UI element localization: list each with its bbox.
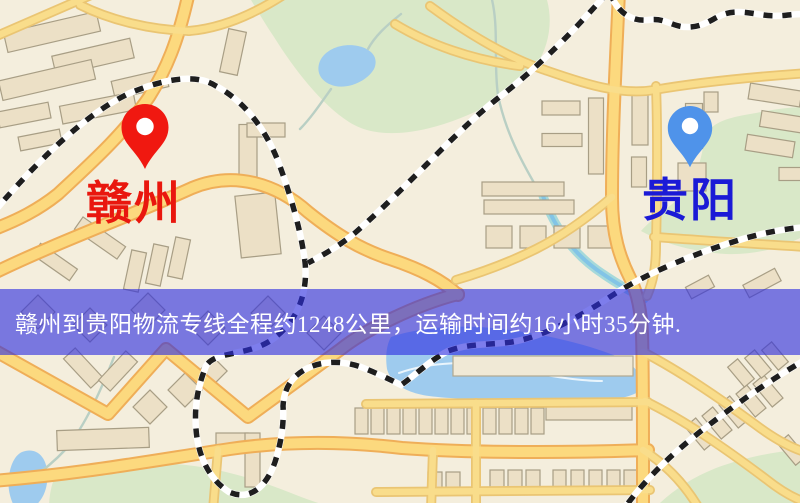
destination-city-label: 贵阳 (642, 177, 738, 223)
origin-city-label: 赣州 (86, 180, 182, 226)
map-figure: 赣州 贵阳 赣州到贵阳物流专线全程约1248公里，运输时间约16小时35分钟. (0, 0, 800, 503)
route-banner: 赣州到贵阳物流专线全程约1248公里，运输时间约16小时35分钟. (0, 289, 800, 355)
route-banner-text: 赣州到贵阳物流专线全程约1248公里，运输时间约16小时35分钟. (15, 289, 681, 355)
map-canvas[interactable] (0, 0, 800, 503)
waterfront-building (453, 356, 633, 376)
